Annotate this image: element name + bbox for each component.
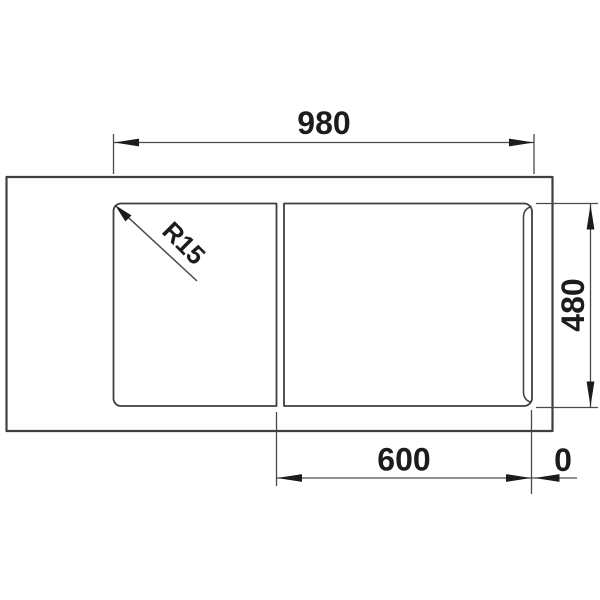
- arrow-480-bottom: [587, 382, 595, 407]
- dim-label-edge-offset: 0: [554, 442, 572, 478]
- outline-layer: [7, 177, 553, 431]
- dim-label-bowl-section: 600: [377, 442, 430, 478]
- text-layer: 980 480 600 0 R15: [157, 105, 591, 478]
- dimension-layer: [114, 134, 599, 494]
- arrow-600-right: [506, 474, 531, 482]
- right-bowl-outline: [284, 204, 532, 407]
- worktop-outline: [7, 177, 553, 431]
- right-bowl-inner-rim-line: [524, 207, 532, 403]
- drawing-canvas: 980 480 600 0 R15: [0, 0, 600, 600]
- arrow-600-left: [277, 474, 302, 482]
- dim-label-corner-radius: R15: [157, 216, 212, 271]
- arrow-980-left: [114, 139, 139, 147]
- sink-dimension-drawing: 980 480 600 0 R15: [0, 0, 600, 600]
- dim-label-depth: 480: [555, 278, 591, 331]
- arrow-480-top: [587, 205, 595, 230]
- arrow-980-right: [509, 139, 534, 147]
- dim-label-overall-width: 980: [297, 105, 350, 141]
